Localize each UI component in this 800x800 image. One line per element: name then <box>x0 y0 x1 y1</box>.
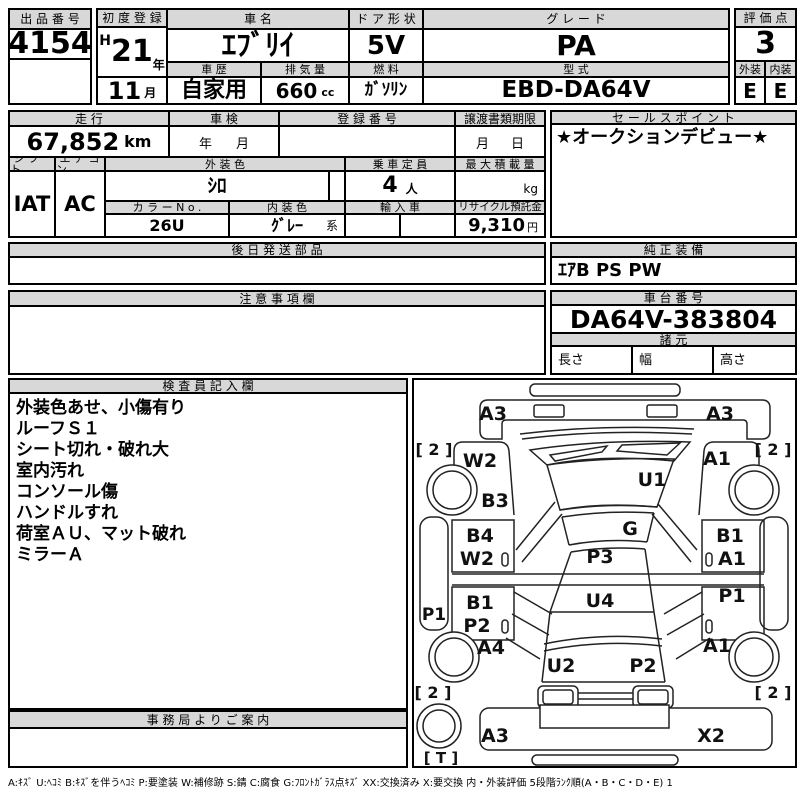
wiper-zone <box>530 441 690 465</box>
rear-window-band <box>544 636 662 651</box>
later-parts-value <box>8 256 546 285</box>
wheel-front-right-rim <box>735 471 773 509</box>
import-car-cell-1 <box>344 213 401 238</box>
door-shape-value: 5V <box>348 28 424 63</box>
damage-pillar-left: B3 <box>481 490 509 512</box>
mileage-value: 67,852km <box>8 125 170 158</box>
wiper-blade-right <box>617 443 680 455</box>
spec-length-cell: 長さ <box>550 345 633 375</box>
transfer-month-unit: 月 <box>476 138 489 151</box>
door-handle-slide-right <box>706 620 712 633</box>
spare-tire-mark: [ T ] <box>424 749 458 766</box>
max-load-unit: kg <box>523 183 538 195</box>
oem-equipment-value: ｴｱB PS PW <box>550 256 797 285</box>
damage-slide-door-right: P1 <box>718 585 745 607</box>
registration-number-value <box>278 125 456 158</box>
transfer-deadline-value: 月日 <box>454 125 546 158</box>
score-header: 評価点 <box>734 8 797 28</box>
recycle-deposit-value: 9,310円 <box>454 213 546 238</box>
spare-tire-rim <box>423 710 455 742</box>
max-load-value: kg <box>454 170 546 202</box>
first-registration-header: 初度登録 <box>96 8 168 28</box>
wheel-rear-right-rim <box>735 638 773 676</box>
displacement-value: 660cc <box>260 76 350 105</box>
recycle-deposit-unit: 円 <box>527 222 538 233</box>
damage-quarter-left: A4 <box>477 637 505 659</box>
door-handle-front-right <box>706 553 712 566</box>
recycle-deposit-number: 9,310 <box>468 217 525 235</box>
damage-front-door-right-2: A1 <box>718 548 746 570</box>
damage-slide-door-left-2: P2 <box>463 615 490 637</box>
car-diagram-svg: A3 A3 [ 2 ] [ 2 ] W2 A1 U1 B3 G B4 W2 B1… <box>414 380 795 766</box>
shaken-year-unit: 年 <box>199 138 212 151</box>
displacement-number: 660 <box>276 81 318 101</box>
shift-value: IAT <box>8 170 56 238</box>
wheel-rear-left-rim <box>435 638 473 676</box>
tire-depth-rear-left: [ 2 ] <box>415 683 452 702</box>
door-handle-slide-left <box>502 620 508 633</box>
inspector-note-line: ミラーＡ <box>16 545 84 566</box>
interior-color-name: ｸﾞﾚｰ <box>271 218 303 234</box>
taillight-right-inner <box>638 690 668 704</box>
grade-value: PA <box>422 28 730 63</box>
headlight-right <box>647 405 677 417</box>
shaken-value: 年月 <box>168 125 280 158</box>
model-code-value: EBD-DA64V <box>422 76 730 105</box>
damage-rear-bumper-left: A3 <box>481 725 509 747</box>
inspector-note-line: 荷室ＡＵ、マット破れ <box>16 524 186 545</box>
damage-rocker-left: P1 <box>422 605 446 625</box>
side-molding-band <box>452 574 764 585</box>
spec-width-cell: 幅 <box>631 345 714 375</box>
sales-point-box: ★オークションデビュー★ <box>550 123 797 238</box>
interior-color-suffix: 系 <box>326 220 338 232</box>
color-no-value: 26U <box>104 213 230 238</box>
front-grille-strip <box>530 384 680 396</box>
damage-windshield: G <box>622 518 638 540</box>
reg-month: 11 <box>108 79 141 103</box>
exterior-color-value: ｼﾛ <box>104 170 330 202</box>
inspector-note-line: ハンドルすれ <box>16 503 118 524</box>
car-name-value: ｴﾌﾞﾘｲ <box>166 28 350 63</box>
displacement-unit: cc <box>321 87 334 98</box>
fuel-value: ｶﾞｿﾘﾝ <box>348 76 424 105</box>
inspector-note-line: ルーフＳ１ <box>16 419 100 440</box>
aircon-value: AC <box>54 170 106 238</box>
shaken-month-unit: 月 <box>236 138 249 151</box>
tire-depth-rear-right: [ 2 ] <box>755 683 792 702</box>
damage-front-door-left-1: B4 <box>466 525 494 547</box>
capacity-value: 4人 <box>344 170 456 202</box>
damage-quarter-right: A1 <box>703 635 731 657</box>
chassis-no-value: DA64V-383804 <box>550 304 797 334</box>
reg-month-unit: 月 <box>144 87 156 99</box>
tailgate-lower-panel <box>540 705 669 728</box>
interior-color-value: ｸﾞﾚｰ 系 <box>228 213 346 238</box>
interior-score-value: E <box>764 76 797 105</box>
damage-front-door-right-1: B1 <box>716 525 744 547</box>
capacity-number: 4 <box>382 175 397 197</box>
import-car-cell-2 <box>399 213 456 238</box>
mileage-unit: km <box>124 134 151 150</box>
first-registration-month: 11月 <box>96 76 168 105</box>
damage-front-bumper-left: A3 <box>479 403 507 425</box>
door-shape-header: ドア形状 <box>348 8 424 30</box>
grade-header: グレード <box>422 8 730 30</box>
damage-code-legend: A:ｷｽﾞ U:ﾍｺﾐ B:ｷｽﾞを伴うﾍｺﾐ P:要塗装 W:補修跡 S:錆 … <box>8 774 797 789</box>
damage-tailgate-left: U2 <box>547 655 576 677</box>
headlight-left <box>534 405 564 417</box>
car-damage-diagram: A3 A3 [ 2 ] [ 2 ] W2 A1 U1 B3 G B4 W2 B1… <box>412 378 797 768</box>
rear-lower-strip <box>532 755 678 765</box>
taillight-left-inner <box>543 690 573 704</box>
damage-tailgate-right: P2 <box>629 655 656 677</box>
reg-year: 21 <box>111 37 153 67</box>
lot-number-header: 出品番号 <box>8 8 92 30</box>
damage-front-door-left-2: W2 <box>460 548 494 570</box>
auction-sheet: 出品番号 4154 初度登録 H21年 11月 車名 ｴﾌﾞﾘｲ 車歴 自家用 … <box>0 0 800 800</box>
damage-roof-rear: U4 <box>586 590 615 612</box>
tire-depth-front-right: [ 2 ] <box>755 440 792 459</box>
inspector-note-line: コンソール傷 <box>16 482 118 503</box>
lot-number-empty-box <box>8 58 92 105</box>
exterior-score-value: E <box>734 76 766 105</box>
damage-front-bumper-right: A3 <box>706 403 734 425</box>
damage-windshield-upper: U1 <box>638 469 667 491</box>
damage-fender-right: A1 <box>703 448 731 470</box>
tire-depth-front-left: [ 2 ] <box>416 440 453 459</box>
inspector-notes-box: 外装色あせ、小傷有り ルーフＳ１ シート切れ・破れ大 室内汚れ コンソール傷 ハ… <box>8 392 408 710</box>
cowl-strip <box>520 427 694 439</box>
office-box <box>8 727 408 768</box>
first-registration-year: H21年 <box>96 26 168 78</box>
score-value: 3 <box>734 26 797 62</box>
taillight-connector <box>578 693 633 699</box>
mileage-number: 67,852 <box>27 130 120 154</box>
reg-year-unit: 年 <box>153 59 165 71</box>
notice-box <box>8 305 546 375</box>
history-value: 自家用 <box>166 76 262 105</box>
lot-number-value: 4154 <box>8 28 92 60</box>
damage-fender-left: W2 <box>463 450 497 472</box>
wheel-front-left-rim <box>433 471 471 509</box>
inspector-note-line: シート切れ・破れ大 <box>16 440 169 461</box>
inspector-note-line: 外装色あせ、小傷有り <box>16 398 186 419</box>
capacity-unit: 人 <box>406 183 418 195</box>
damage-roof-front: P3 <box>586 546 613 568</box>
era-letter: H <box>99 34 111 48</box>
car-name-header: 車名 <box>166 8 350 30</box>
inspector-note-line: 室内汚れ <box>16 461 84 482</box>
spec-height-cell: 高さ <box>712 345 797 375</box>
transfer-day-unit: 日 <box>511 138 524 151</box>
door-handle-front-left <box>502 553 508 566</box>
sales-point-value: ★オークションデビュー★ <box>556 129 768 147</box>
damage-rear-bumper-right: X2 <box>697 725 725 747</box>
damage-slide-door-left-1: B1 <box>466 592 494 614</box>
